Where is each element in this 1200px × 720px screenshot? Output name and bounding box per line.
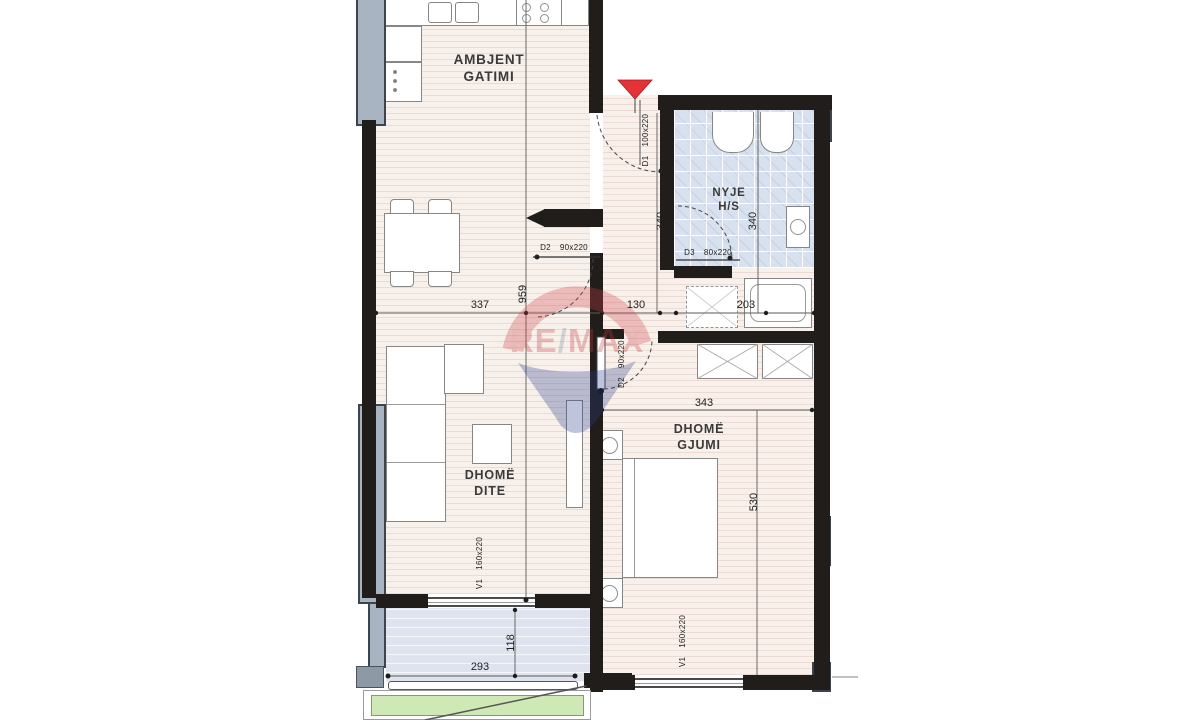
- door-d1-arc: [597, 115, 661, 172]
- dim-343: 343: [679, 397, 729, 409]
- floor-plan: RE/MAX AMBJENT GATIMI NYJE H/S DHOMË DIT…: [0, 0, 1200, 720]
- terrace-diagonal-line: [425, 686, 586, 720]
- room-label-bedroom: DHOMË GJUMI: [669, 422, 729, 453]
- door-d2-living-hinge: [535, 255, 540, 260]
- plan-overlay: RE/MAX: [0, 0, 1200, 720]
- label-door-d2-bedroom: D290x220: [615, 334, 627, 394]
- dim-118: 118: [505, 625, 517, 661]
- dim-340-hall: 340: [655, 203, 667, 239]
- label-door-d1: D1100x220: [639, 110, 651, 170]
- dim-337: 337: [455, 299, 505, 311]
- dim-203: 203: [721, 299, 771, 311]
- dim-340-bath: 340: [747, 203, 759, 239]
- dim-959: 959: [517, 276, 529, 312]
- door-d1-tip: [659, 169, 664, 174]
- label-door-d2-living: D290x220: [531, 242, 597, 253]
- dim-530: 530: [748, 484, 760, 520]
- room-label-kitchen: AMBJENT GATIMI: [434, 52, 544, 86]
- label-window-v1-bedroom: V1160x220: [676, 611, 688, 671]
- room-label-living: DHOMË DITE: [460, 468, 520, 499]
- dim-130: 130: [611, 299, 661, 311]
- entrance-arrow-icon: [618, 80, 652, 99]
- wall-stub-arrow: [526, 209, 545, 227]
- label-window-v1-living: V1160x220: [473, 533, 485, 593]
- dim-293: 293: [455, 661, 505, 673]
- label-door-d3: D380x220: [676, 247, 740, 258]
